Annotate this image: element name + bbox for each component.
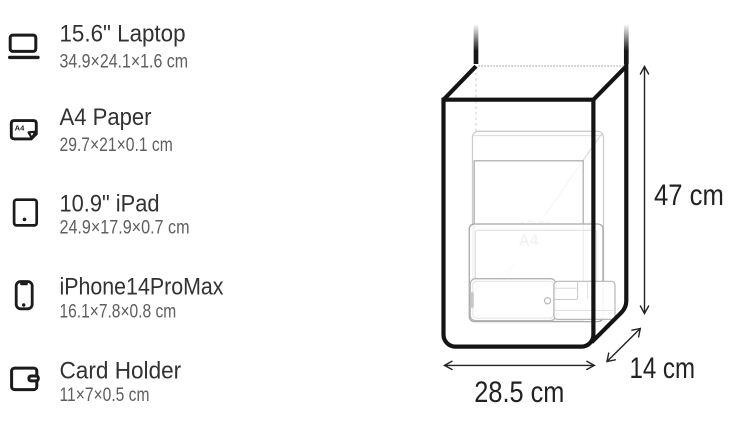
svg-text:15.6" Laptop: 15.6" Laptop [60, 20, 186, 47]
svg-text:29.7×21×0.1 cm: 29.7×21×0.1 cm [60, 134, 173, 156]
svg-text:16.1×7.8×0.8 cm: 16.1×7.8×0.8 cm [60, 301, 177, 323]
svg-text:A4 Paper: A4 Paper [60, 104, 152, 131]
svg-text:10.9" iPad: 10.9" iPad [60, 191, 160, 218]
svg-text:28.5 cm: 28.5 cm [474, 376, 564, 409]
svg-text:34.9×24.1×1.6 cm: 34.9×24.1×1.6 cm [60, 50, 189, 72]
svg-text:iPhone14ProMax: iPhone14ProMax [60, 273, 224, 300]
svg-text:24.9×17.9×0.7 cm: 24.9×17.9×0.7 cm [60, 216, 190, 238]
svg-text:A4: A4 [15, 124, 25, 133]
svg-text:47 cm: 47 cm [654, 179, 724, 212]
svg-text:11×7×0.5 cm: 11×7×0.5 cm [60, 384, 150, 406]
svg-text:Card Holder: Card Holder [60, 357, 182, 384]
svg-text:14 cm: 14 cm [630, 352, 696, 385]
